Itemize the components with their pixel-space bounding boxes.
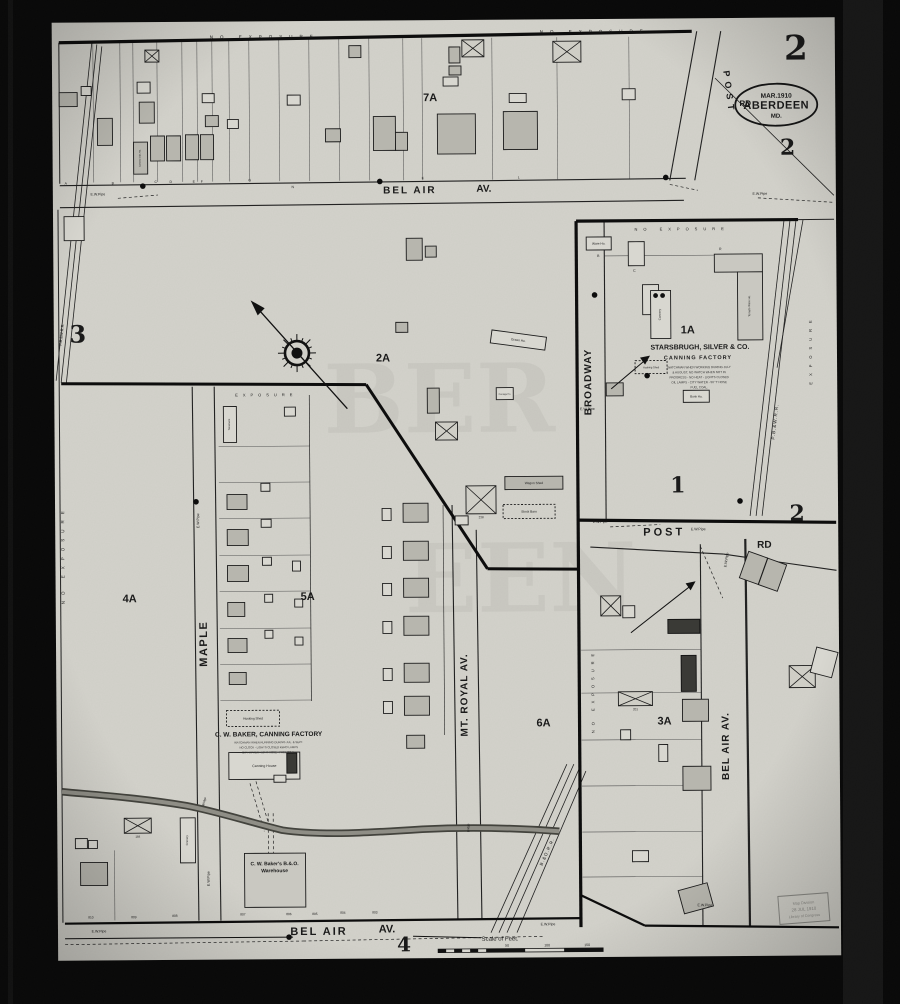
- paper-vignette: [52, 17, 842, 960]
- sanborn-map-sheet: BEREEN Canned Gds Ho.Green Ho.Carriage H…: [0, 0, 900, 1004]
- scan-edge-strip: [843, 0, 883, 1004]
- scan-edge-streak: [8, 0, 13, 1004]
- scanned-map-page: BEREEN Canned Gds Ho.Green Ho.Carriage H…: [0, 0, 900, 1004]
